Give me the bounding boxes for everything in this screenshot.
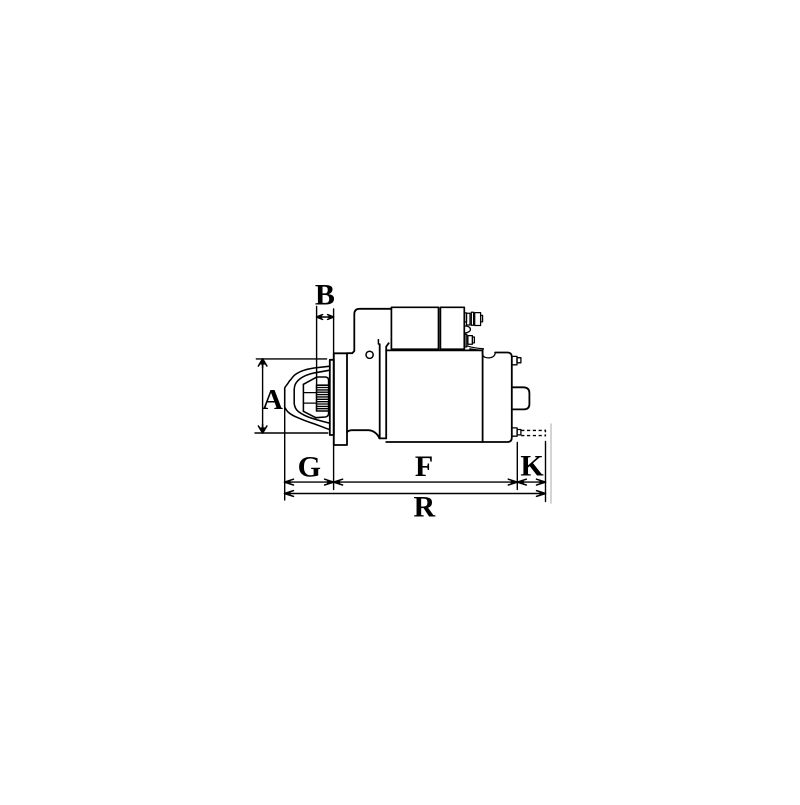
svg-text:F: F [415,450,433,483]
svg-text:K: K [520,450,544,483]
svg-text:A: A [262,384,283,416]
svg-text:B: B [315,279,335,312]
svg-text:G: G [298,451,321,484]
svg-text:R: R [413,491,435,524]
